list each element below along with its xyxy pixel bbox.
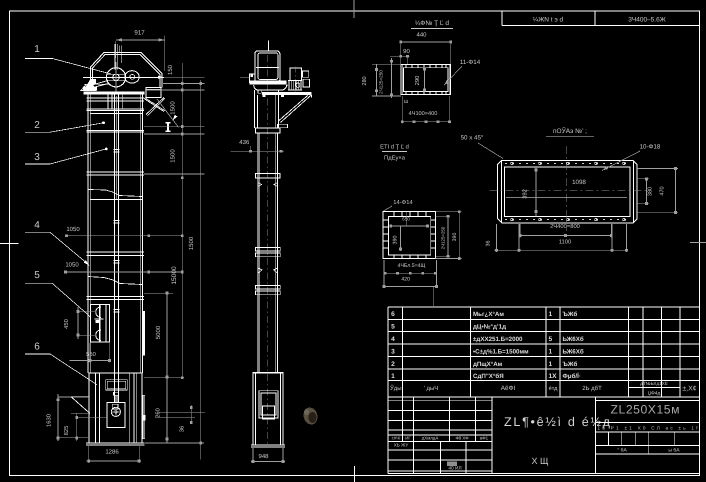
svg-text:2Ч400=800: 2Ч400=800 [550, 223, 580, 230]
svg-text:15000: 15000 [171, 266, 178, 285]
svg-text:АёФІ: АёФІ [501, 385, 516, 392]
svg-text:6: 6 [34, 342, 40, 353]
svg-text:2: 2 [34, 120, 40, 131]
svg-text:1286: 1286 [105, 449, 119, 456]
svg-text:1Х: 1Х [549, 373, 558, 380]
svg-text:150: 150 [167, 64, 174, 75]
svg-text:1: 1 [549, 311, 553, 318]
svg-text:2Ч125=250: 2Ч125=250 [379, 70, 384, 94]
svg-text:¼ЖΝ t э d: ¼ЖΝ t э d [533, 17, 564, 24]
svg-text:2Ь дбТ: 2Ь дбТ [582, 385, 602, 392]
svg-text:5: 5 [34, 270, 40, 281]
svg-text:2: 2 [391, 361, 395, 368]
svg-text:14-Φ14: 14-Φ14 [393, 199, 413, 206]
svg-text:¼Ф№ Ţ Ľ d: ¼Ф№ Ţ Ľ d [415, 20, 449, 27]
svg-text:дЦ•№°д’1д: дЦ•№°д’1д [473, 324, 506, 331]
svg-text:1500: 1500 [170, 101, 177, 115]
svg-text:дХмлдА: дХмлдА [422, 436, 439, 441]
svg-text:5: 5 [549, 336, 553, 343]
svg-text:СдП"Х°бЯ: СдП"Х°бЯ [473, 373, 504, 380]
svg-text:1: 1 [549, 361, 553, 368]
svg-text:917: 917 [134, 30, 145, 37]
svg-text:2Ч125=250: 2Ч125=250 [441, 226, 446, 249]
svg-text:650: 650 [402, 217, 410, 222]
svg-text:дТ№ЬХд1ХЕ: дТ№ЬХд1ХЕ [640, 381, 668, 386]
svg-text:380: 380 [648, 187, 654, 196]
svg-text:éтд: éтд [549, 385, 558, 392]
svg-text:948: 948 [258, 453, 269, 460]
svg-text:390: 390 [452, 233, 458, 242]
svg-text:90: 90 [403, 48, 410, 55]
svg-text:пΟЎΑэ №’ ;: пΟЎΑэ №’ ; [553, 127, 587, 135]
svg-text:280: 280 [362, 76, 368, 85]
svg-text:1: 1 [34, 44, 40, 55]
svg-text:390: 390 [393, 236, 399, 245]
svg-text:1050: 1050 [66, 226, 80, 233]
svg-text:ЬЖ6Хб: ЬЖ6Хб [563, 348, 584, 355]
svg-text:3: 3 [34, 152, 40, 163]
svg-text:1: 1 [549, 348, 553, 355]
svg-text:50 x 45°: 50 x 45° [461, 135, 484, 142]
svg-text:440: 440 [416, 32, 427, 39]
svg-text:392: 392 [522, 189, 529, 199]
svg-text:ХЬ ЖУ: ХЬ ЖУ [394, 443, 409, 448]
svg-text:Мьг¿Х°Ам: Мьг¿Х°Ам [473, 311, 504, 318]
svg-text:470: 470 [660, 186, 666, 195]
svg-text:4: 4 [391, 336, 395, 343]
svg-text:1098: 1098 [572, 179, 586, 186]
svg-text:Ш: Ш [404, 99, 408, 104]
svg-text:ЬЖ6Хб: ЬЖ6Хб [563, 336, 584, 343]
svg-text:4ЧБл.5=4Щ: 4ЧБл.5=4Щ [398, 263, 426, 269]
svg-text:ЪЖб: ЪЖб [563, 311, 578, 318]
svg-text:Ўды: Ўды [390, 384, 402, 392]
svg-text:’ дыЧ: ’ дыЧ [424, 385, 439, 392]
svg-text:•С±д%1.Б=1500мм: •С±д%1.Б=1500мм [473, 348, 529, 355]
svg-text:40 ИЛ: 40 ИЛ [448, 465, 461, 471]
svg-text:36: 36 [179, 426, 186, 432]
svg-text:ПдЕу×а: ПдЕу×а [384, 156, 406, 162]
svg-text:36: 36 [486, 241, 492, 247]
svg-text:1630: 1630 [46, 414, 53, 427]
svg-text:4Ч100=400: 4Ч100=400 [409, 111, 438, 117]
svg-text:5000: 5000 [155, 325, 162, 339]
svg-text:560: 560 [86, 351, 96, 358]
svg-text:1050: 1050 [65, 262, 79, 269]
svg-text:ИГ: ИГ [405, 436, 411, 441]
svg-text:260: 260 [155, 408, 162, 418]
svg-text:1б Р1 ±1 Х0 СЛ ас ±ь 1f: 1б Р1 ±1 Х0 СЛ ас ±ь 1f [598, 426, 699, 431]
svg-text:6: 6 [391, 311, 395, 318]
svg-text:3: 3 [391, 348, 395, 355]
svg-text:Фμб/Ї·: Фμб/Ї· [563, 372, 581, 380]
svg-text:вФ1: вФ1 [480, 436, 489, 441]
svg-text:450: 450 [63, 319, 70, 329]
svg-text:±#ЧІ: ±#ЧІ [392, 436, 401, 441]
svg-text:5: 5 [391, 324, 395, 331]
svg-text:290: 290 [414, 76, 421, 86]
svg-text:ZL250X15м: ZL250X15м [611, 403, 680, 417]
svg-text:1500: 1500 [170, 149, 177, 163]
svg-text:ы бА: ы бА [668, 448, 680, 454]
svg-text:Х Щ: Х Щ [532, 456, 550, 466]
svg-text:Ф9 ХФ: Ф9 ХФ [455, 436, 469, 441]
svg-text:±,Х¢: ±,Х¢ [682, 386, 696, 393]
svg-text:° бА: ° бА [617, 448, 627, 454]
svg-text:1: 1 [391, 373, 395, 380]
svg-text:420: 420 [401, 276, 410, 282]
svg-text:4: 4 [34, 220, 40, 231]
svg-text:ЪЖб: ЪЖб [563, 361, 578, 368]
svg-text:1500: 1500 [188, 236, 195, 250]
svg-text:10-Φ18: 10-Φ18 [640, 144, 661, 151]
svg-text:ZL¶•ê½ì d é½д: ZL¶•ê½ì d é½д [504, 415, 611, 429]
svg-text:11-Φ14: 11-Φ14 [460, 59, 481, 66]
svg-text:дПщХ°Ам: дПщХ°Ам [473, 361, 503, 368]
svg-text:436: 436 [239, 139, 250, 146]
svg-text:1100: 1100 [559, 239, 571, 246]
svg-text:ЏФ4д: ЏФ4д [648, 391, 661, 397]
svg-text:±дХХ251.Б=2000: ±дХХ251.Б=2000 [473, 336, 523, 343]
svg-text:ЕΤΙ d Ţ Ľ d: ЕΤΙ d Ţ Ľ d [380, 144, 409, 151]
svg-text:3Ч400–5.6Ж: 3Ч400–5.6Ж [628, 17, 665, 24]
svg-text:825: 825 [63, 426, 70, 436]
